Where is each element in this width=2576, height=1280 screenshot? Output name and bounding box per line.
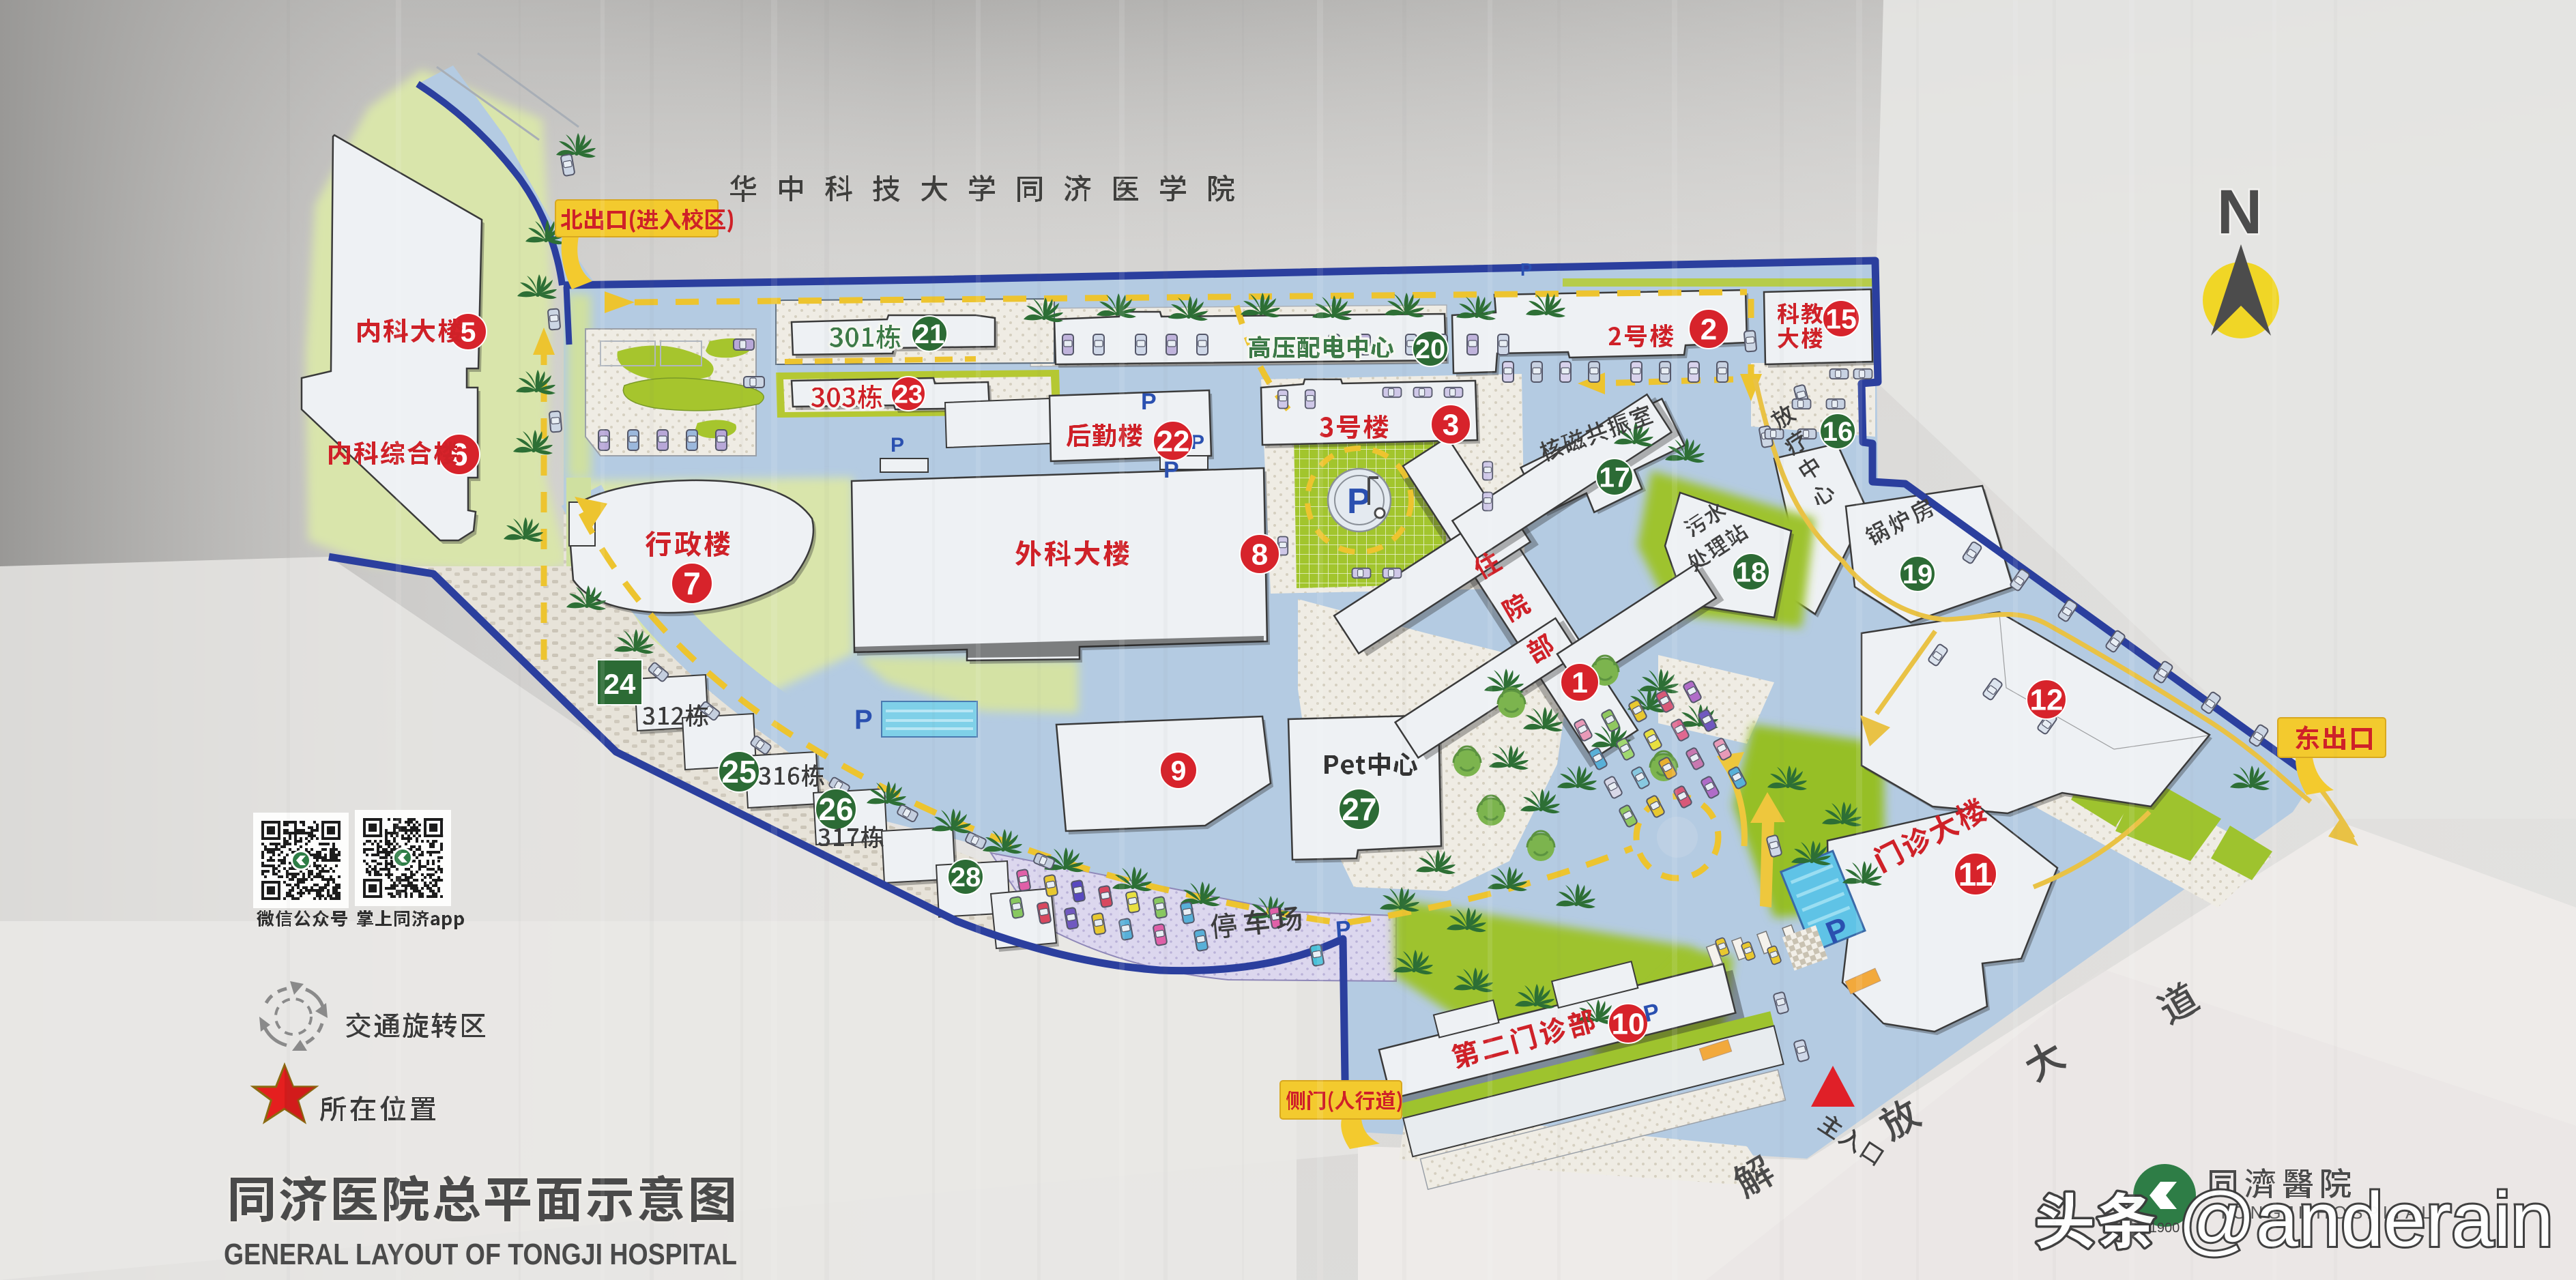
svg-text:7: 7 <box>683 566 701 601</box>
svg-text:P: P <box>1347 482 1371 521</box>
svg-text:P: P <box>854 705 873 735</box>
svg-text:@anderain: @anderain <box>2178 1177 2553 1262</box>
svg-text:1900: 1900 <box>2150 1221 2180 1236</box>
svg-text:9: 9 <box>1171 755 1187 786</box>
svg-text:P: P <box>1520 259 1532 280</box>
svg-text:23: 23 <box>894 380 923 409</box>
svg-text:1: 1 <box>1572 667 1588 699</box>
svg-text:P: P <box>891 434 904 456</box>
svg-text:24: 24 <box>604 668 636 700</box>
svg-text:5: 5 <box>461 316 476 347</box>
svg-text:N: N <box>2217 177 2262 247</box>
svg-text:3: 3 <box>1443 408 1459 441</box>
svg-text:15: 15 <box>1825 303 1857 334</box>
svg-text:26: 26 <box>818 791 853 827</box>
svg-text:18: 18 <box>1735 556 1767 587</box>
svg-text:8: 8 <box>1251 538 1268 571</box>
svg-text:16: 16 <box>1823 417 1853 447</box>
svg-text:2: 2 <box>1701 312 1717 346</box>
svg-text:17: 17 <box>1599 461 1630 493</box>
svg-text:11: 11 <box>1958 857 1993 893</box>
svg-text:22: 22 <box>1157 424 1190 458</box>
svg-text:25: 25 <box>721 754 756 789</box>
svg-text:GENERAL LAYOUT OF TONGJI HOSPI: GENERAL LAYOUT OF TONGJI HOSPITAL <box>224 1238 737 1271</box>
svg-text:P: P <box>1141 389 1157 415</box>
svg-text:10: 10 <box>1612 1007 1645 1041</box>
svg-text:12: 12 <box>2030 683 2064 716</box>
svg-text:27: 27 <box>1342 791 1376 827</box>
svg-text:21: 21 <box>914 319 945 349</box>
svg-text:P: P <box>1335 916 1352 942</box>
svg-text:20: 20 <box>1415 334 1446 364</box>
